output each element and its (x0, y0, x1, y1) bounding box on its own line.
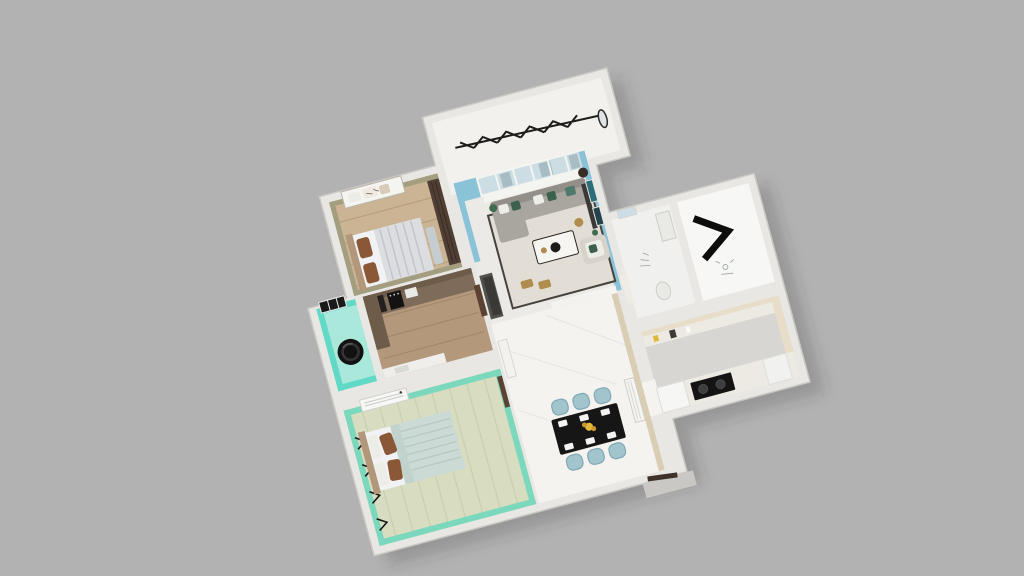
floorplan-viewport[interactable] (0, 0, 1024, 576)
floorplan-3d-render (0, 0, 1024, 576)
